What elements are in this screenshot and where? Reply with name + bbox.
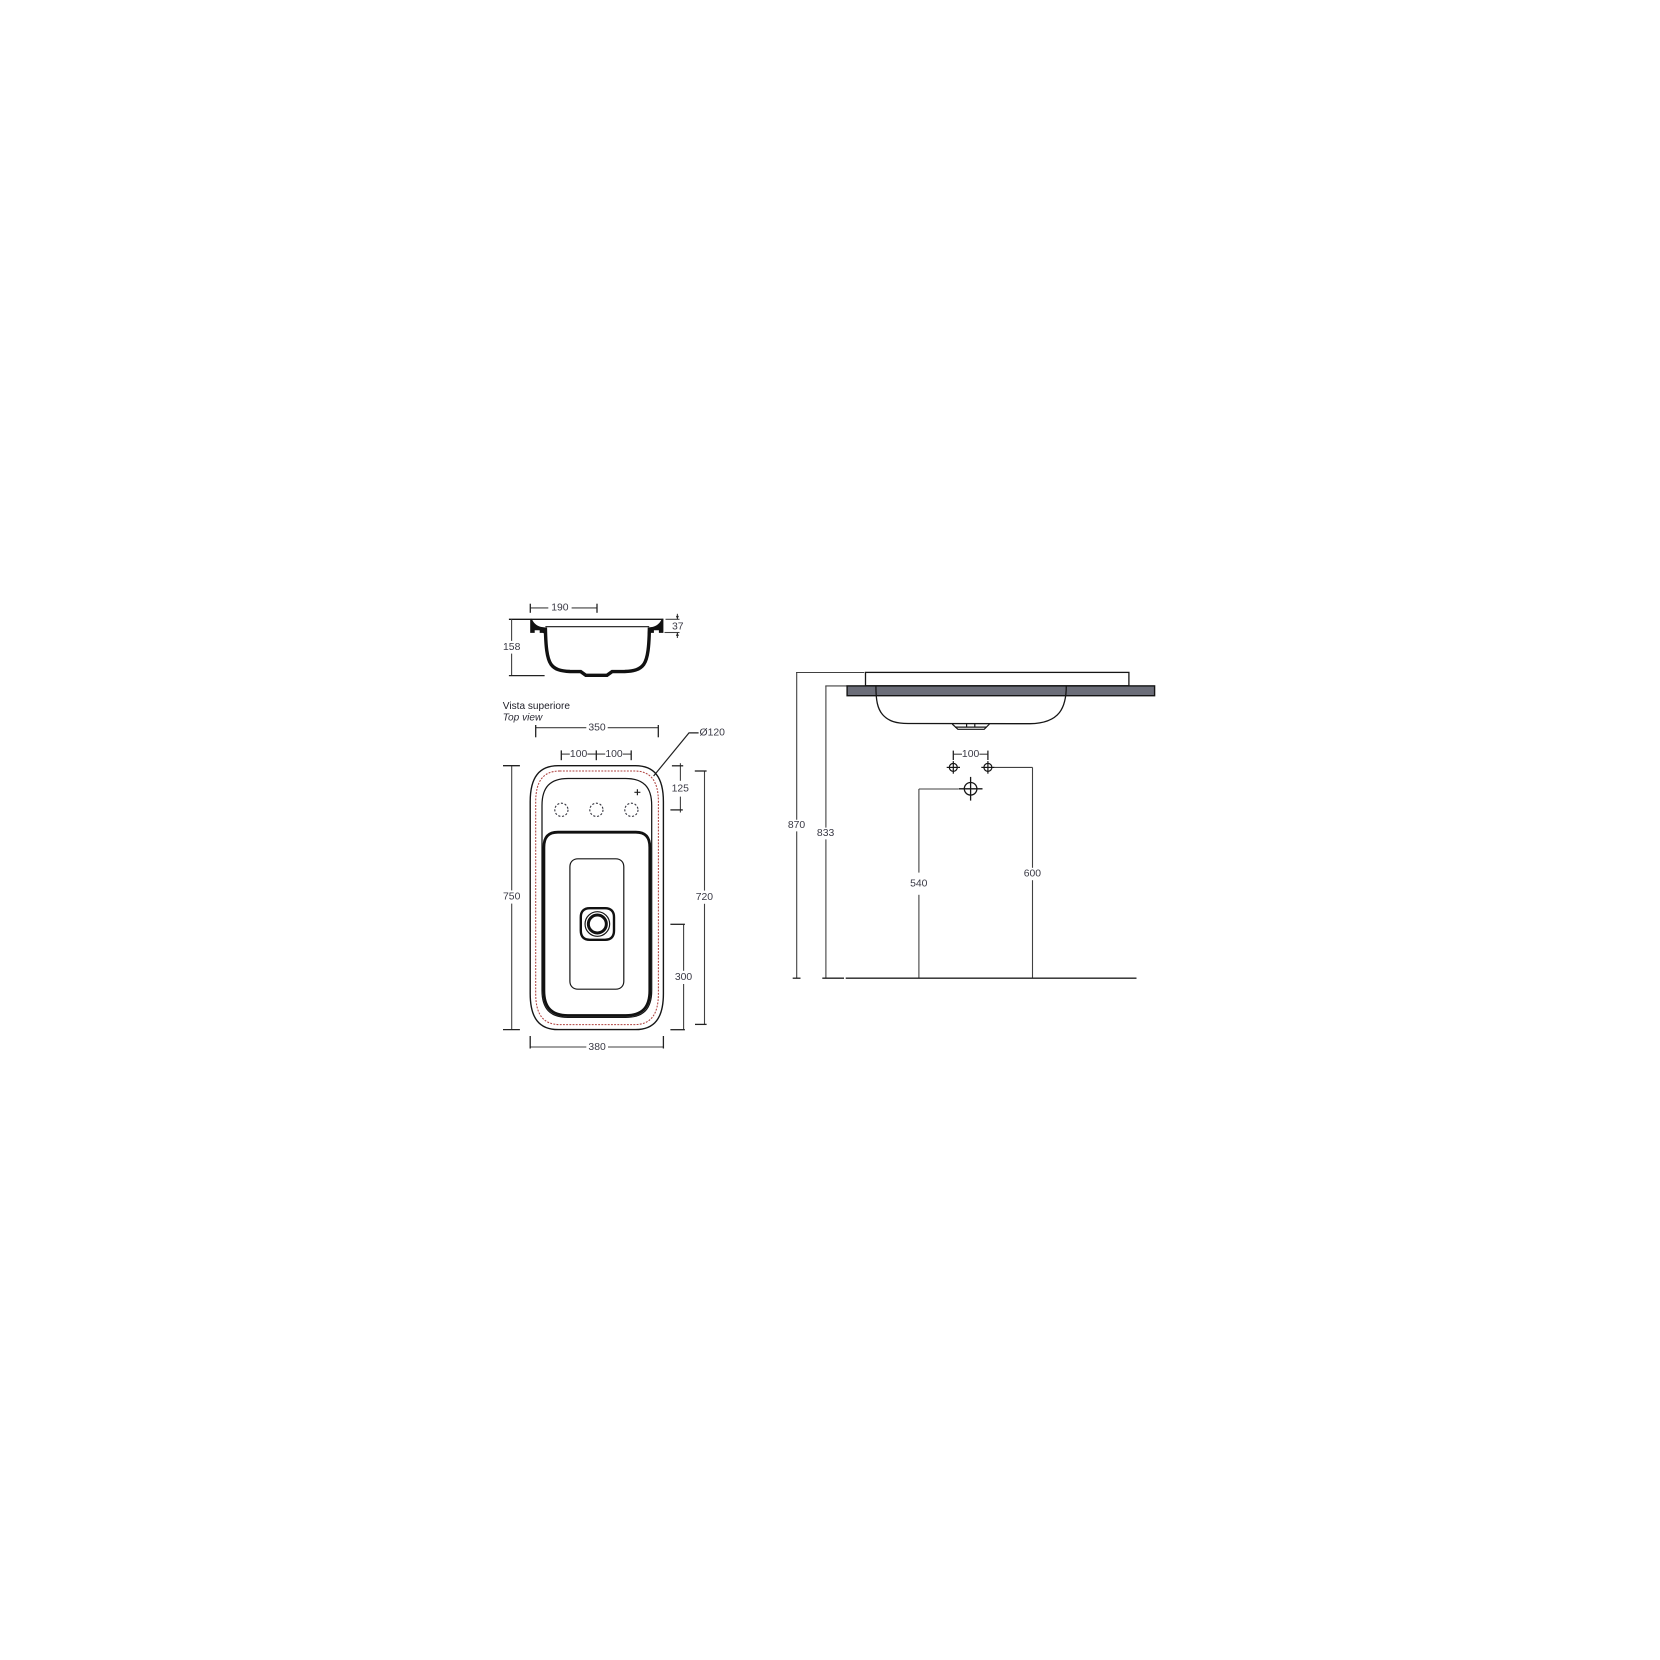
svg-text:350: 350 — [588, 723, 606, 734]
svg-text:750: 750 — [503, 892, 521, 903]
svg-text:380: 380 — [588, 1042, 606, 1053]
svg-text:125: 125 — [672, 783, 690, 794]
svg-text:100: 100 — [605, 749, 623, 760]
svg-text:100: 100 — [570, 749, 588, 760]
svg-text:870: 870 — [788, 820, 806, 831]
svg-text:190: 190 — [551, 603, 569, 614]
svg-text:37: 37 — [672, 621, 684, 632]
svg-text:600: 600 — [1024, 869, 1042, 880]
svg-text:720: 720 — [696, 892, 714, 903]
svg-text:540: 540 — [910, 878, 928, 889]
svg-text:300: 300 — [675, 972, 693, 983]
svg-text:Vista superiore: Vista superiore — [503, 701, 571, 712]
svg-text:158: 158 — [503, 642, 521, 653]
svg-text:100: 100 — [962, 749, 980, 760]
svg-text:Ø120: Ø120 — [700, 728, 726, 739]
svg-text:Top view: Top view — [503, 713, 543, 724]
svg-text:833: 833 — [817, 828, 835, 839]
